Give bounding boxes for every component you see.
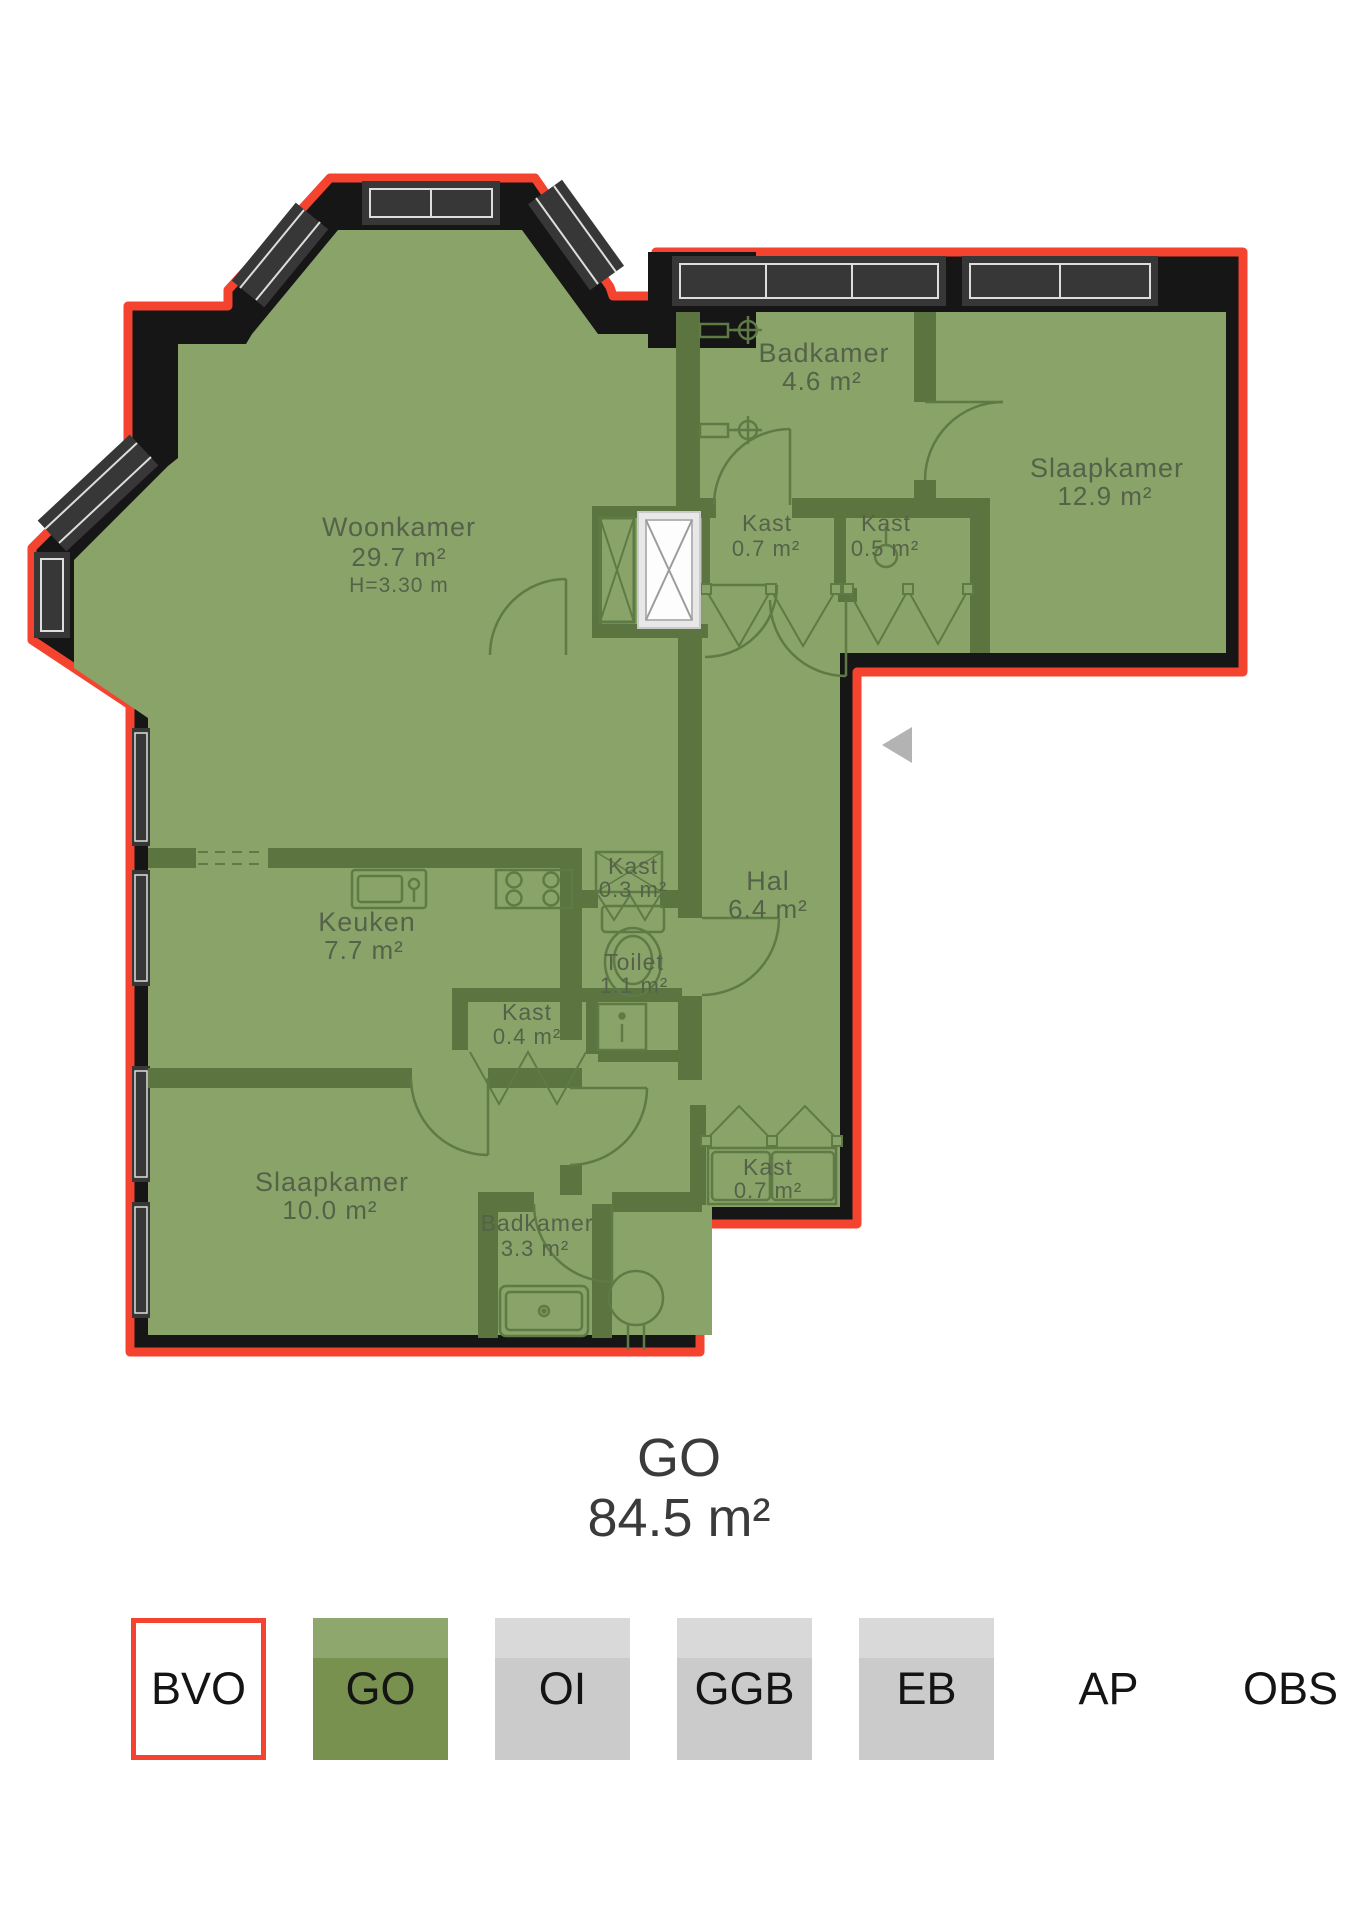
legend-label: EB bbox=[896, 1663, 956, 1715]
room-label-badkamer-bottom: Badkamer bbox=[481, 1210, 594, 1236]
legend-item-go[interactable]: GO bbox=[313, 1618, 448, 1760]
room-label-kast-mid: Kast bbox=[608, 853, 658, 879]
room-height-woonkamer: H=3.30 m bbox=[349, 574, 449, 597]
legend-label: GGB bbox=[694, 1663, 794, 1715]
room-label-kast-top-left: Kast bbox=[742, 510, 792, 536]
legend-item-eb[interactable]: EB bbox=[859, 1618, 994, 1760]
room-label-woonkamer: Woonkamer bbox=[322, 512, 476, 542]
room-area-kast-top-left: 0.7 m² bbox=[732, 536, 800, 561]
floor-plan-svg: Woonkamer 29.7 m² H=3.30 m Badkamer 4.6 … bbox=[0, 0, 1358, 1400]
legend-item-obs[interactable]: OBS bbox=[1223, 1618, 1358, 1760]
room-label-toilet: Toilet bbox=[604, 949, 664, 975]
floorplan-page: Woonkamer 29.7 m² H=3.30 m Badkamer 4.6 … bbox=[0, 0, 1358, 1920]
floor-plan: Woonkamer 29.7 m² H=3.30 m Badkamer 4.6 … bbox=[0, 0, 1358, 1400]
legend: BVO GO OI GGB EB AP OBS bbox=[131, 1618, 1358, 1760]
room-area-kast-bottom: 0.7 m² bbox=[734, 1178, 802, 1203]
room-label-kast-small: Kast bbox=[502, 999, 552, 1025]
room-label-kast-bottom: Kast bbox=[743, 1154, 793, 1180]
window-top-bay bbox=[362, 181, 500, 225]
legend-label: OI bbox=[539, 1663, 587, 1715]
room-label-kast-top-right: Kast bbox=[861, 510, 911, 536]
window-top-right-2 bbox=[962, 256, 1158, 306]
room-label-hal: Hal bbox=[746, 866, 790, 896]
room-area-kast-small: 0.4 m² bbox=[493, 1024, 561, 1049]
room-area-slaapkamer-right: 12.9 m² bbox=[1057, 481, 1152, 511]
window-top-right-1 bbox=[672, 256, 946, 306]
legend-item-bvo[interactable]: BVO bbox=[131, 1618, 266, 1760]
shaft-excluded bbox=[638, 512, 700, 628]
summary-label: GO bbox=[0, 1428, 1358, 1488]
room-area-woonkamer: 29.7 m² bbox=[351, 542, 446, 572]
room-label-slaapkamer-bottom: Slaapkamer bbox=[255, 1167, 409, 1197]
room-area-slaapkamer-bottom: 10.0 m² bbox=[282, 1195, 377, 1225]
legend-item-ap[interactable]: AP bbox=[1041, 1618, 1176, 1760]
room-area-badkamer-bottom: 3.3 m² bbox=[501, 1236, 569, 1261]
room-label-keuken: Keuken bbox=[318, 907, 416, 937]
room-label-badkamer-top: Badkamer bbox=[758, 338, 889, 368]
legend-label: OBS bbox=[1243, 1663, 1338, 1715]
room-area-toilet: 1.1 m² bbox=[600, 973, 668, 998]
legend-label: GO bbox=[345, 1663, 415, 1715]
room-label-slaapkamer-right: Slaapkamer bbox=[1030, 453, 1184, 483]
legend-item-oi[interactable]: OI bbox=[495, 1618, 630, 1760]
legend-item-ggb[interactable]: GGB bbox=[677, 1618, 812, 1760]
room-area-kast-mid: 0.3 m² bbox=[599, 877, 667, 902]
room-area-hal: 6.4 m² bbox=[728, 894, 808, 924]
legend-label: BVO bbox=[151, 1663, 246, 1715]
room-area-kast-top-right: 0.5 m² bbox=[851, 536, 919, 561]
legend-label: AP bbox=[1078, 1663, 1138, 1715]
room-area-badkamer-top: 4.6 m² bbox=[782, 366, 862, 396]
area-summary: GO 84.5 m² bbox=[0, 1428, 1358, 1548]
summary-value: 84.5 m² bbox=[0, 1488, 1358, 1548]
window-bay-west bbox=[34, 552, 70, 638]
floor-area-go bbox=[74, 230, 1226, 1335]
direction-triangle-icon bbox=[882, 727, 912, 763]
room-area-keuken: 7.7 m² bbox=[324, 935, 404, 965]
